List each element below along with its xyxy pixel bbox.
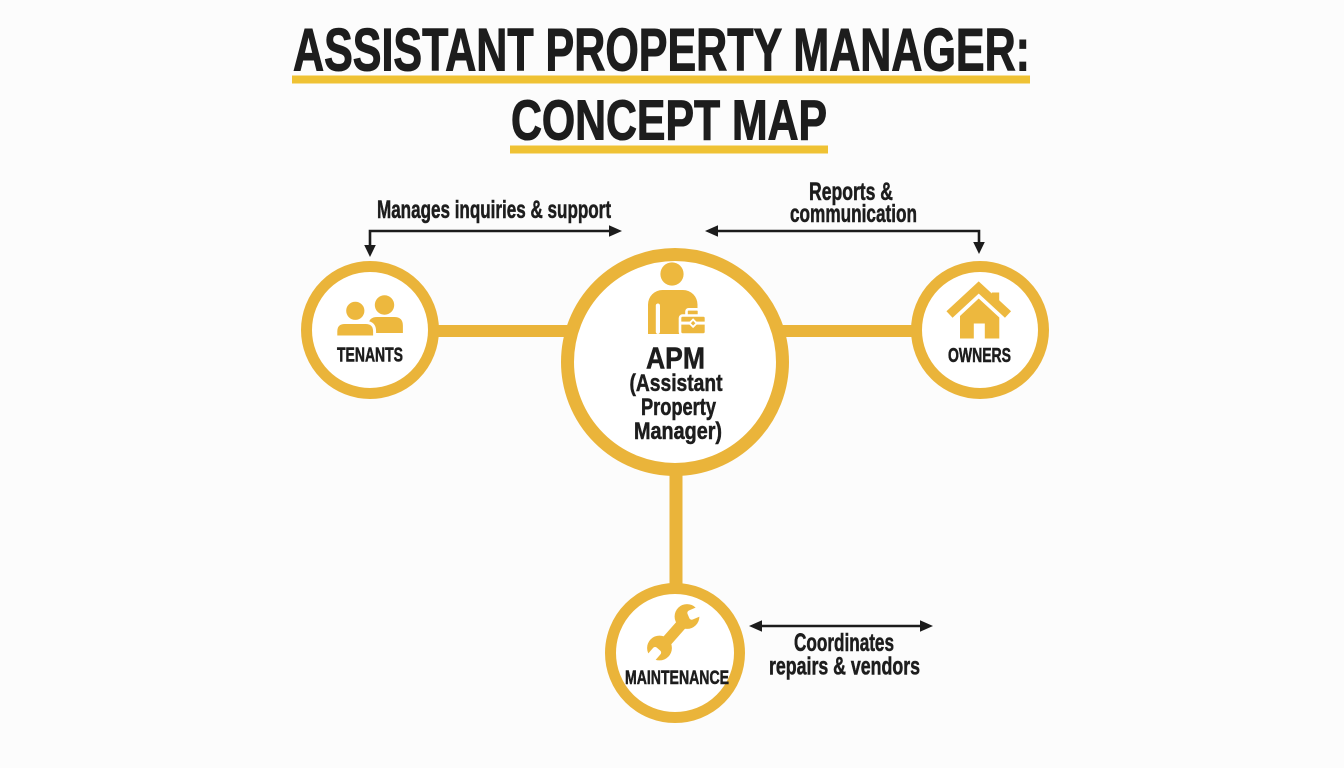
svg-text:MAINTENANCE: MAINTENANCE [625,668,729,689]
svg-text:(Assistant: (Assistant [630,370,723,397]
svg-text:ASSISTANT PROPERTY MANAGER:: ASSISTANT PROPERTY MANAGER: [293,17,1030,84]
svg-text:Manages inquiries & support: Manages inquiries & support [377,196,611,224]
svg-text:Manager): Manager) [634,418,722,445]
svg-text:Property: Property [641,394,716,421]
svg-text:OWNERS: OWNERS [948,345,1011,367]
svg-text:TENANTS: TENANTS [337,345,403,367]
svg-text:CONCEPT MAP: CONCEPT MAP [511,89,827,153]
svg-text:communication: communication [790,200,917,228]
svg-text:repairs & vendors: repairs & vendors [769,653,920,681]
